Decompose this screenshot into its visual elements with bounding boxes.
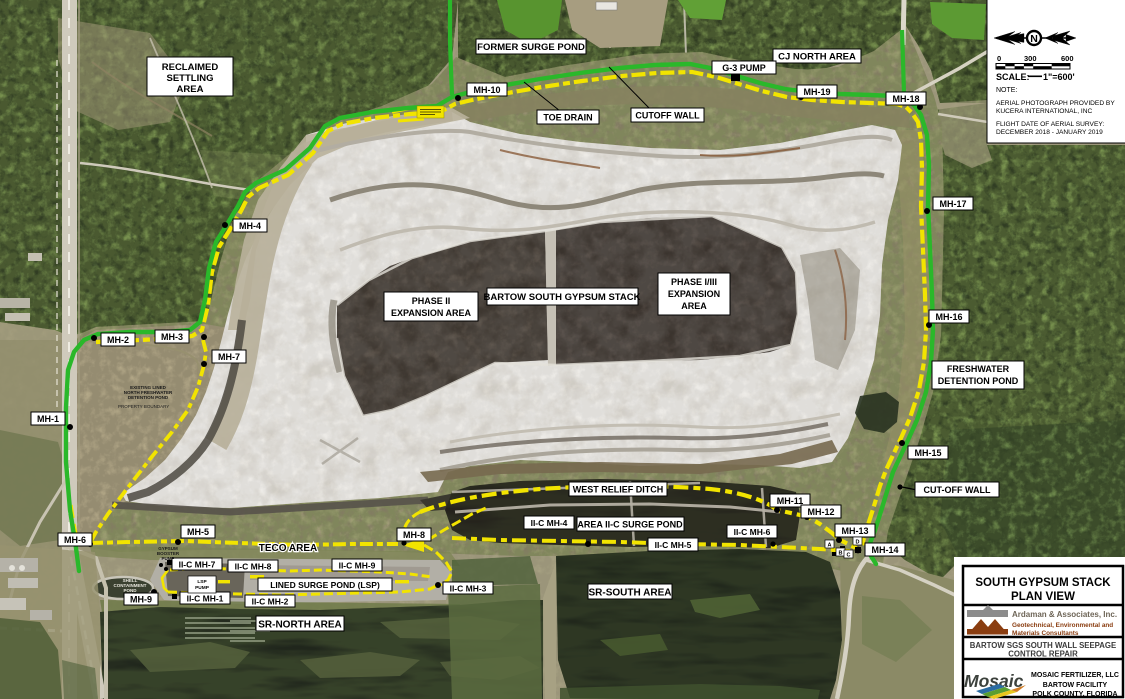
svg-text:POND: POND	[123, 588, 137, 593]
svg-text:A: A	[828, 543, 832, 549]
svg-text:MH-2: MH-2	[107, 335, 129, 345]
svg-text:BARTOW SOUTH GYPSUM STACK: BARTOW SOUTH GYPSUM STACK	[484, 292, 641, 303]
svg-text:PROPERTY BOUNDARY: PROPERTY BOUNDARY	[118, 404, 169, 409]
svg-text:MH-10: MH-10	[473, 85, 500, 95]
svg-text:AREA: AREA	[681, 301, 707, 311]
svg-text:MH-9: MH-9	[130, 595, 152, 605]
svg-text:FRESHWATER: FRESHWATER	[947, 364, 1010, 374]
svg-text:Materials Consultants: Materials Consultants	[1012, 630, 1079, 637]
svg-text:SR-SOUTH AREA: SR-SOUTH AREA	[589, 588, 672, 599]
svg-text:MH-11: MH-11	[777, 496, 804, 506]
svg-text:LSP: LSP	[197, 579, 207, 585]
svg-text:MH-6: MH-6	[64, 535, 86, 545]
svg-text:DECEMBER 2018 - JANUARY 2019: DECEMBER 2018 - JANUARY 2019	[996, 129, 1103, 136]
svg-text:II-C MH-3: II-C MH-3	[450, 584, 487, 594]
svg-text:MH-15: MH-15	[914, 448, 941, 458]
svg-text:N: N	[1030, 33, 1038, 45]
svg-text:PLAN VIEW: PLAN VIEW	[1011, 591, 1075, 603]
svg-text:PUMP: PUMP	[161, 556, 174, 561]
svg-text:NOTE:: NOTE:	[996, 87, 1017, 94]
svg-text:FORMER SURGE POND: FORMER SURGE POND	[477, 42, 585, 53]
svg-text:CUT-OFF WALL: CUT-OFF WALL	[924, 485, 991, 495]
svg-text:MH-14: MH-14	[871, 545, 898, 555]
svg-text:II-C MH-8: II-C MH-8	[235, 562, 272, 572]
svg-text:EXPANSION AREA: EXPANSION AREA	[391, 308, 472, 318]
svg-text:CJ NORTH AREA: CJ NORTH AREA	[778, 52, 856, 63]
svg-text:SCALE:: SCALE:	[996, 72, 1030, 82]
svg-text:II-C MH-1: II-C MH-1	[187, 594, 224, 604]
svg-text:MH-7: MH-7	[218, 352, 240, 362]
svg-text:MH-8: MH-8	[403, 530, 425, 540]
svg-text:MH-13: MH-13	[841, 526, 868, 536]
svg-text:MH-1: MH-1	[37, 414, 59, 424]
svg-text:II-C MH-4: II-C MH-4	[531, 518, 568, 528]
svg-text:AREA: AREA	[177, 84, 204, 95]
svg-text:DETENTION POND: DETENTION POND	[128, 395, 169, 400]
svg-text:MH-5: MH-5	[187, 527, 209, 537]
svg-text:1"=600': 1"=600'	[1043, 72, 1075, 82]
svg-text:PUMP: PUMP	[195, 585, 210, 591]
svg-text:MOSAIC FERTILIZER, LLC: MOSAIC FERTILIZER, LLC	[1031, 672, 1119, 679]
svg-text:TECO AREA: TECO AREA	[259, 543, 318, 554]
svg-text:D: D	[856, 540, 860, 546]
svg-text:CONTROL REPAIR: CONTROL REPAIR	[1008, 650, 1078, 659]
svg-text:II-C MH-9: II-C MH-9	[339, 561, 376, 571]
svg-text:MH-18: MH-18	[892, 94, 919, 104]
svg-text:LINED SURGE POND (LSP): LINED SURGE POND (LSP)	[270, 580, 380, 590]
svg-text:BARTOW FACILITY: BARTOW FACILITY	[1043, 682, 1108, 689]
svg-text:KUCERA INTERNATIONAL, INC: KUCERA INTERNATIONAL, INC	[996, 108, 1092, 115]
svg-text:AERIAL PHOTOGRAPH PROVIDED BY: AERIAL PHOTOGRAPH PROVIDED BY	[996, 100, 1115, 107]
svg-text:MH-17: MH-17	[939, 199, 966, 209]
svg-text:B: B	[839, 551, 843, 557]
svg-text:EXPANSION: EXPANSION	[668, 289, 720, 299]
svg-text:MH-16: MH-16	[935, 312, 962, 322]
svg-text:Geotechnical, Environmental: Geotechnical, Environmental and	[1012, 622, 1113, 629]
svg-text:FLIGHT DATE OF AERIAL SURVEY:: FLIGHT DATE OF AERIAL SURVEY:	[996, 121, 1104, 128]
svg-text:C: C	[847, 553, 851, 559]
svg-text:MH-4: MH-4	[239, 221, 261, 231]
svg-text:RECLAIMED: RECLAIMED	[162, 62, 219, 73]
svg-text:II-C MH-6: II-C MH-6	[734, 527, 771, 537]
svg-text:II-C MH-5: II-C MH-5	[655, 540, 692, 550]
svg-text:Ardaman & Associates, Inc.: Ardaman & Associates, Inc.	[1012, 610, 1117, 619]
svg-text:WEST RELIEF DITCH: WEST RELIEF DITCH	[573, 485, 664, 495]
svg-text:G-3 PUMP: G-3 PUMP	[722, 63, 766, 73]
svg-text:600: 600	[1061, 54, 1074, 63]
svg-text:MH-19: MH-19	[803, 87, 830, 97]
svg-text:SOUTH GYPSUM STACK: SOUTH GYPSUM STACK	[975, 577, 1111, 589]
svg-text:DETENTION POND: DETENTION POND	[938, 376, 1019, 386]
svg-text:SR-NORTH AREA: SR-NORTH AREA	[258, 620, 342, 631]
svg-text:TOE DRAIN: TOE DRAIN	[543, 113, 592, 123]
svg-text:II-C MH-2: II-C MH-2	[252, 597, 289, 607]
svg-text:MH-3: MH-3	[161, 332, 183, 342]
svg-text:MH-12: MH-12	[807, 507, 834, 517]
svg-text:300: 300	[1024, 54, 1037, 63]
svg-text:SETTLING: SETTLING	[167, 73, 214, 84]
svg-text:POLK COUNTY, FLORIDA: POLK COUNTY, FLORIDA	[1032, 691, 1117, 698]
svg-text:0: 0	[997, 54, 1001, 63]
svg-text:AREA II-C SURGE POND: AREA II-C SURGE POND	[577, 520, 683, 530]
svg-text:PHASE I/III: PHASE I/III	[671, 277, 717, 287]
svg-text:PHASE II: PHASE II	[412, 296, 451, 306]
svg-text:CUTOFF WALL: CUTOFF WALL	[635, 111, 700, 121]
svg-text:II-C MH-7: II-C MH-7	[179, 560, 216, 570]
